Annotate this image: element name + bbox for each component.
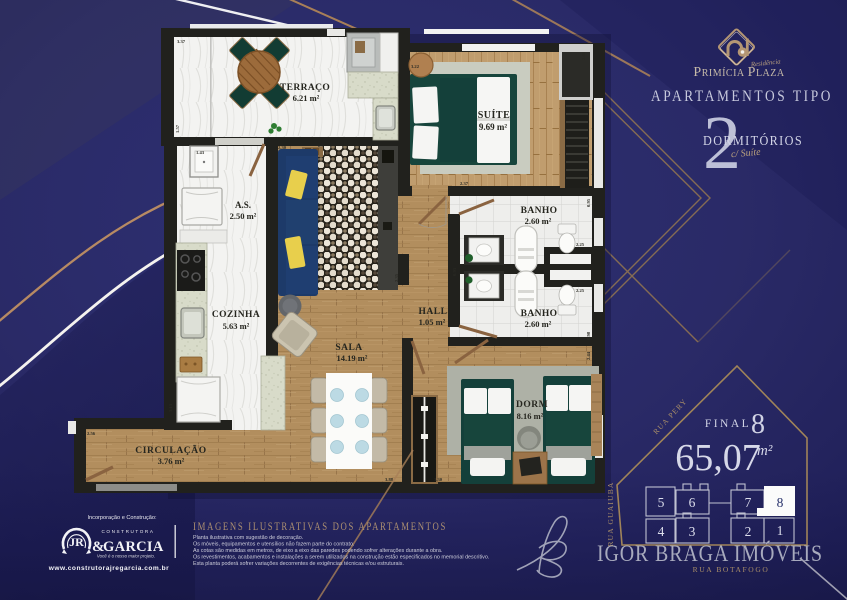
svg-text:1: 1 <box>777 523 784 538</box>
svg-text:14.19 m²: 14.19 m² <box>337 353 368 363</box>
svg-text:0.95: 0.95 <box>586 198 591 207</box>
svg-text:1.05 m²: 1.05 m² <box>419 317 446 327</box>
svg-text:DORM: DORM <box>516 400 548 410</box>
svg-text:Os revestimentos, acabamentos: Os revestimentos, acabamentos e instalaç… <box>193 555 489 561</box>
svg-text:m²: m² <box>757 443 773 459</box>
svg-text:0.93: 0.93 <box>452 267 457 276</box>
svg-text:5: 5 <box>658 495 665 510</box>
svg-text:Incorporação e Construção:: Incorporação e Construção: <box>87 515 156 521</box>
svg-text:Planta ilustrativa com sugestã: Planta ilustrativa com sugestão de decor… <box>193 535 303 541</box>
svg-text:DORMITÓRIOS: DORMITÓRIOS <box>703 133 803 148</box>
svg-text:2.40: 2.40 <box>581 51 586 60</box>
svg-text:IMAGENS ILUSTRATIVAS DOS APART: IMAGENS ILUSTRATIVAS DOS APARTAMENTOS <box>193 521 447 533</box>
svg-text:2.60 m²: 2.60 m² <box>525 319 552 329</box>
svg-text:8: 8 <box>777 495 784 510</box>
svg-text:2.60 m²: 2.60 m² <box>525 216 552 226</box>
svg-text:CIRCULAÇÃO: CIRCULAÇÃO <box>135 444 206 456</box>
svg-text:CONSTRUTORA: CONSTRUTORA <box>102 529 155 534</box>
svg-text:COZINHA: COZINHA <box>212 310 260 320</box>
svg-text:3.76 m²: 3.76 m² <box>158 456 185 466</box>
svg-text:Esta planta poderá sofrer vari: Esta planta poderá sofrer variações deco… <box>193 561 404 567</box>
svg-text:A.S.: A.S. <box>235 200 251 210</box>
svg-text:6.21 m²: 6.21 m² <box>293 93 320 103</box>
svg-text:0.98: 0.98 <box>586 331 591 340</box>
svg-text:6: 6 <box>689 495 696 510</box>
svg-text:2.50 m²: 2.50 m² <box>230 211 257 221</box>
svg-text:3.37: 3.37 <box>177 39 186 44</box>
svg-text:Você é o nosso maior projeto.: Você é o nosso maior projeto. <box>97 554 155 559</box>
svg-text:PRIMÍCIAPLAZA: PRIMÍCIAPLAZA <box>693 65 784 80</box>
svg-text:TERRAÇO: TERRAÇO <box>280 83 330 93</box>
svg-text:65,07: 65,07 <box>675 437 761 479</box>
svg-text:RUA BOTAFOGO: RUA BOTAFOGO <box>693 565 770 574</box>
svg-text:2.25: 2.25 <box>576 288 585 293</box>
svg-text:9.69 m²: 9.69 m² <box>479 122 507 132</box>
svg-text:RUA GUAIUBA: RUA GUAIUBA <box>606 481 615 546</box>
svg-text:IGOR BRAGA IMÓVEIS: IGOR BRAGA IMÓVEIS <box>597 540 823 566</box>
svg-text:As cotas são medidas em metros: As cotas são medidas em metros, de eixo … <box>193 548 442 554</box>
svg-text:FINAL: FINAL <box>705 418 751 430</box>
svg-text:2.37: 2.37 <box>460 181 469 186</box>
svg-text:3: 3 <box>689 524 696 539</box>
svg-text:3.30: 3.30 <box>434 477 443 482</box>
svg-text:2.25: 2.25 <box>576 242 585 247</box>
svg-text:BANHO: BANHO <box>521 309 558 319</box>
svg-text:BANHO: BANHO <box>521 206 558 216</box>
svg-text:SUÍTE: SUÍTE <box>478 109 511 121</box>
svg-text:APARTAMENTOS TIPO: APARTAMENTOS TIPO <box>651 88 833 105</box>
svg-text:HALL: HALL <box>419 307 448 317</box>
svg-text:Os móveis, equipamentos e uten: Os móveis, equipamentos e utensílios não… <box>193 542 355 548</box>
svg-text:5.63 m²: 5.63 m² <box>223 321 250 331</box>
svg-text:2: 2 <box>745 524 752 539</box>
svg-text:4: 4 <box>658 524 665 539</box>
svg-text:1.57: 1.57 <box>175 124 180 133</box>
svg-text:3.13: 3.13 <box>168 403 173 412</box>
svg-text:www.construtorajregarcia.com.b: www.construtorajregarcia.com.br <box>48 565 169 572</box>
svg-text:2.44: 2.44 <box>586 351 591 360</box>
svg-text:8: 8 <box>751 409 765 440</box>
svg-text:2.35: 2.35 <box>394 273 399 282</box>
svg-text:2.56: 2.56 <box>87 431 96 436</box>
svg-text:7: 7 <box>745 495 752 510</box>
svg-text:SALA: SALA <box>335 343 362 353</box>
svg-text:8.16 m²: 8.16 m² <box>517 411 544 421</box>
svg-text:JR: JR <box>69 535 84 549</box>
svg-text:3.22: 3.22 <box>411 64 420 69</box>
svg-text:2.30: 2.30 <box>278 145 287 150</box>
svg-text:1.43: 1.43 <box>196 150 205 155</box>
